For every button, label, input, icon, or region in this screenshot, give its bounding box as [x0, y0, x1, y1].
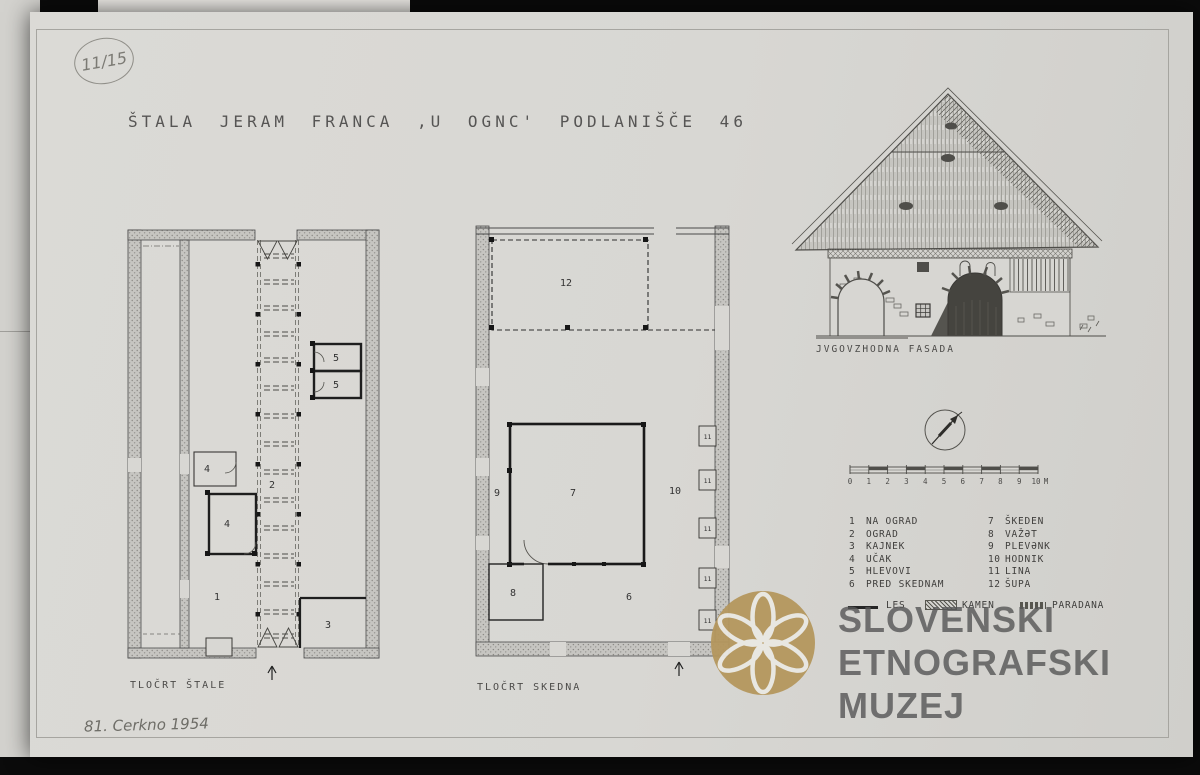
left-arch-opening	[838, 279, 884, 336]
legend-item: 1NA OGRAD	[849, 516, 944, 529]
room-label-10: 10	[669, 486, 681, 497]
eave-beam-band	[828, 249, 1072, 258]
room-skeden	[510, 424, 644, 564]
legend-item: 12ŠUPA	[988, 579, 1051, 592]
lina-label: 11	[704, 477, 712, 485]
room-supa-dashed	[489, 237, 715, 330]
scale-tick-label: 6	[961, 477, 966, 486]
scale-tick-label: 0	[848, 477, 853, 486]
ground-line	[816, 336, 1106, 338]
room-label-2: 2	[269, 480, 275, 491]
scale-tick-label: 2	[885, 477, 890, 486]
floor-plan-stala: 1 2 3 4 4 5 5	[126, 224, 394, 684]
legend-item: 5HLEVOVI	[849, 566, 944, 579]
room-label-4b: 4	[224, 519, 230, 530]
north-arrow	[919, 403, 971, 455]
scale-tick-label: 5	[942, 477, 947, 486]
room-label-7: 7	[570, 488, 576, 499]
legend-item: 4UČAK	[849, 554, 944, 567]
legend-item: 3KAJNEK	[849, 541, 944, 554]
watermark-line: MUZEJ	[838, 684, 1111, 727]
plan-skedna-caption: TLOČRT SKEDNA	[477, 682, 581, 693]
museum-flower-logo	[708, 588, 818, 698]
room-label-9: 9	[494, 488, 500, 499]
scale-bar: 0 1 2 3 4 5 6 7 8 9 10 M	[846, 460, 1050, 488]
drawing-title: ŠTALA JERAM FRANCA ‚U OGNC' PODLANIŠČE 4…	[128, 112, 747, 131]
room3-wall	[300, 598, 366, 648]
room-ucak-big	[209, 494, 256, 554]
watermark-line: ETNOGRAFSKI	[838, 641, 1111, 684]
ucak-door-arc	[225, 462, 236, 473]
legend-column-1: 1NA OGRAD 2OGRAD 3KAJNEK 4UČAK 5HLEVOVI …	[849, 516, 944, 591]
scale-tick-label: 9	[1017, 477, 1022, 486]
bottom-bay	[206, 638, 232, 656]
entrance-arrow	[268, 666, 276, 680]
lina-label: 11	[704, 525, 712, 533]
scale-tick-label: 8	[998, 477, 1003, 486]
facade-caption: JVGOVZHODNA FASADA	[816, 344, 955, 355]
room-ucak-small	[194, 452, 236, 486]
plan-stala-caption: TLOČRT ŠTALE	[130, 680, 226, 691]
lina-label: 11	[704, 575, 712, 583]
legend-column-2: 7ŠKEDEN 8VAŽƏT 9PLEVƏNK 10HODNIK 11LINA …	[988, 516, 1051, 591]
museum-watermark-text: SLOVENSKI ETNOGRAFSKI MUZEJ	[838, 598, 1111, 727]
room-label-12: 12	[560, 278, 572, 289]
skeden-door-arc	[524, 540, 548, 564]
legend-item: 2OGRAD	[849, 529, 944, 542]
small-dark-niche	[917, 262, 929, 272]
scale-unit-label: M	[1044, 477, 1049, 486]
room-label-5b: 5	[333, 380, 339, 391]
feeding-corridor	[256, 240, 302, 648]
legend-item: 11LINA	[988, 566, 1051, 579]
watermark-line: SLOVENSKI	[838, 598, 1111, 641]
room-label-1: 1	[214, 592, 220, 603]
author-signature: 81. Cerkno 1954	[84, 714, 209, 735]
legend-item: 8VAŽƏT	[988, 529, 1051, 542]
entrance-arrow	[675, 662, 683, 676]
legend-item: 7ŠKEDEN	[988, 516, 1051, 529]
facade-drawing	[788, 86, 1110, 346]
room-label-6: 6	[626, 592, 632, 603]
room-label-8: 8	[510, 588, 516, 599]
room-label-5a: 5	[333, 353, 339, 364]
skeden-wall-ticks	[507, 422, 646, 567]
scale-tick-label: 7	[979, 477, 984, 486]
grid-window	[916, 304, 930, 317]
lina-label: 11	[704, 433, 712, 441]
corridor-posts	[256, 262, 302, 617]
scale-tick-label: 1	[867, 477, 872, 486]
legend-item: 9PLEVƏNK	[988, 541, 1051, 554]
legend-item: 10HODNIK	[988, 554, 1051, 567]
scale-tick-label: 3	[904, 477, 909, 486]
scale-tick-label: 4	[923, 477, 928, 486]
top-door-funnel	[258, 241, 297, 259]
grass-ticks	[1080, 321, 1099, 332]
top-wood-wall	[476, 228, 729, 234]
room-label-3: 3	[325, 620, 331, 631]
archive-number: 11/15	[80, 48, 129, 75]
scale-tick-label: 10	[1031, 477, 1041, 486]
floor-plan-skedna: 11 11 11 11 11 6 7 8 9 10 12	[472, 218, 736, 680]
legend-item: 6PRED SKEDNAM	[849, 579, 944, 592]
room-label-4a: 4	[204, 464, 210, 475]
corridor-rungs	[264, 254, 294, 638]
bottom-door-funnel	[258, 628, 298, 647]
photographed-archive-sheet: 11/15 ŠTALA JERAM FRANCA ‚U OGNC' PODLAN…	[0, 0, 1200, 775]
stone-walls	[128, 230, 379, 658]
